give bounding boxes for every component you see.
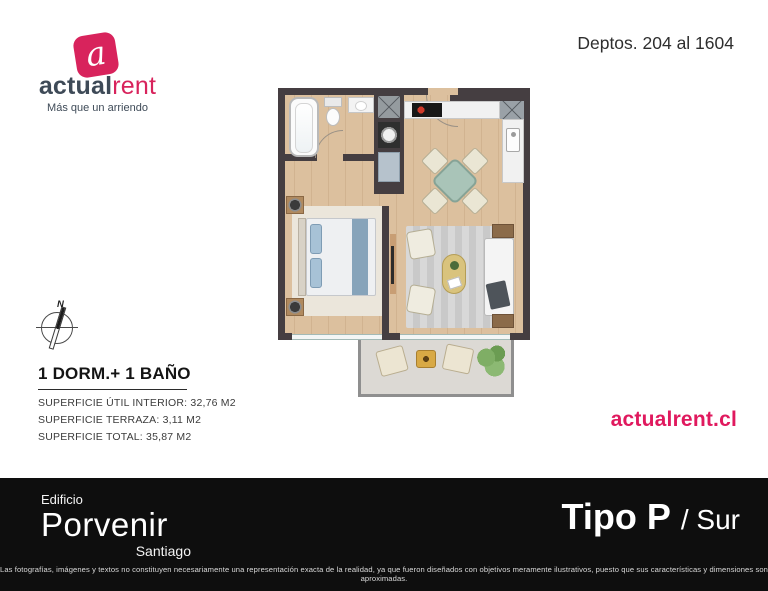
bathtub-basin xyxy=(295,103,313,153)
wall-right xyxy=(523,88,530,340)
website-url: actualrent.cl xyxy=(611,408,737,432)
compass-north-label: N xyxy=(57,299,64,310)
unit-type: Tipo P / Sur xyxy=(562,496,740,538)
washing-machine xyxy=(378,122,400,148)
armchair xyxy=(406,228,436,260)
compass-icon: N xyxy=(36,301,80,349)
building-block: Edificio Porvenir Santiago xyxy=(41,492,191,559)
wall-bathroom-2 xyxy=(343,154,374,161)
wall-bedroom xyxy=(382,206,389,340)
bed-headboard xyxy=(298,218,306,296)
unit-type-bold: Tipo P xyxy=(562,496,671,538)
toilet-tank xyxy=(324,97,342,107)
building-city: Santiago xyxy=(41,543,191,559)
armchair xyxy=(406,284,436,316)
wall-left xyxy=(278,88,285,340)
terrace-railing xyxy=(358,394,514,397)
side-table xyxy=(492,224,514,238)
area-line-total: SUPERFICIE TOTAL: 35,87 M2 xyxy=(38,429,236,446)
area-line-terraza: SUPERFICIE TERRAZA: 3,11 M2 xyxy=(38,412,236,429)
coffee-table xyxy=(442,254,466,294)
pillow xyxy=(310,224,322,254)
nightstand-lamp xyxy=(286,298,304,316)
building-name: Porvenir xyxy=(41,507,191,543)
wall-kitchen-top xyxy=(450,88,530,101)
sink-basin xyxy=(355,101,367,111)
bathtub xyxy=(289,97,319,157)
brand-name-primary: actual xyxy=(39,72,112,100)
bathroom-sink xyxy=(348,97,374,113)
unit-type-light: / Sur xyxy=(681,504,740,536)
area-list: SUPERFICIE ÚTIL INTERIOR: 32,76 M2 SUPER… xyxy=(38,395,236,446)
table-plant xyxy=(450,261,459,270)
terrace-plant xyxy=(476,344,510,378)
pillow xyxy=(310,258,322,288)
entry-opening xyxy=(428,88,458,95)
depts-range-label: Deptos. 204 al 1604 xyxy=(577,33,734,54)
table-book xyxy=(446,276,461,290)
brand-tagline: Más que un arriendo xyxy=(0,102,195,114)
cooktop xyxy=(412,103,442,117)
brand-wordmark: actualrent xyxy=(0,72,195,101)
nightstand-lamp xyxy=(286,196,304,214)
flyer-page: a actualrent Más que un arriendo Deptos.… xyxy=(0,0,768,591)
footer-band: Edificio Porvenir Santiago Tipo P / Sur … xyxy=(0,478,768,591)
refrigerator-space xyxy=(500,101,524,119)
logo-letter: a xyxy=(83,35,108,71)
title-underline xyxy=(38,389,187,390)
tv-screen xyxy=(391,246,394,284)
terrace-chair xyxy=(442,343,475,374)
bed-runner xyxy=(352,219,368,295)
kitchen-faucet xyxy=(511,132,516,137)
legal-disclaimer: Las fotografías, imágenes y textos no co… xyxy=(0,565,768,583)
toilet-bowl xyxy=(326,108,340,126)
unit-title: 1 DORM.+ 1 BAÑO xyxy=(38,364,191,384)
kitchen-sink xyxy=(506,128,520,152)
building-label: Edificio xyxy=(41,492,191,507)
side-table xyxy=(492,314,514,328)
wall-bottom-left xyxy=(278,333,292,340)
floorplan xyxy=(278,88,530,400)
area-line-interior: SUPERFICIE ÚTIL INTERIOR: 32,76 M2 xyxy=(38,395,236,412)
storage-closet xyxy=(378,152,400,182)
wall-bottom-right xyxy=(510,333,530,340)
brand-name-secondary: rent xyxy=(112,72,156,100)
duct-shaft xyxy=(378,96,400,118)
terrace-table xyxy=(416,350,436,368)
